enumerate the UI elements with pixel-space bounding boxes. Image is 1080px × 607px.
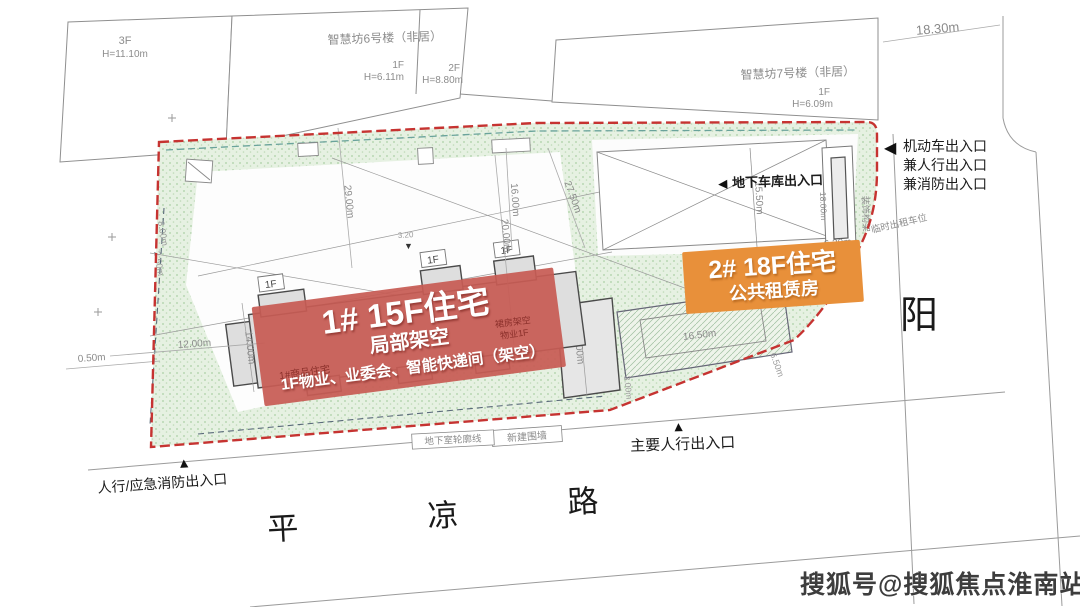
dim-road-top: 18.30m [915,19,960,38]
up-triangle-icon: ▲ [176,454,191,471]
down-triangle-icon: ▼ [404,241,413,251]
dim-edge3: 12.00m [177,338,211,351]
main-ped-entrance-text: 主要人行出入口 [630,434,736,455]
left-arrow-icon: ◀ [884,140,897,157]
up-triangle-icon: ▲ [671,418,685,434]
basement-outline-label: 地下室轮廓线 [412,430,495,449]
emergency-entrance-text: 人行/应急消防出入口 [97,471,228,496]
unit-1f-tag: 1F [427,254,440,266]
floor-label: 1F [392,60,404,71]
garage-entrance-text: 地下车库出入口 [732,172,823,190]
motor-entrance-label: ◀ 机动车出入口 兼人行出入口 兼消防出入口 [884,138,987,192]
motor-entrance-line2: 兼人行出入口 [903,157,987,173]
taxi-spot-label: 临时出租车位 [870,211,929,236]
road-char: 平 [267,510,300,547]
new-wall-label: 新建围墙 [491,426,562,447]
floor-label: 3F [119,35,132,47]
main-ped-entrance-label: ▲ 主要人行出入口 [629,416,735,455]
road-char: 路 [567,483,600,520]
dim-edge4: 0.50m [77,352,105,365]
unit-1f-tag: 1F [264,279,277,291]
road-char: 凉 [427,497,460,534]
watermark-text: 搜狐号@搜狐焦点淮南站 [800,570,1080,599]
motor-entrance-line1: 机动车出入口 [903,138,987,154]
site-plan-screenshot: 3F H=11.10m 智慧坊6号楼（非居） 1F H=6.11m 2F H=8… [0,0,1080,607]
site-plan-drawing: 3F H=11.10m 智慧坊6号楼（非居） 1F H=6.11m 2F H=8… [0,0,1080,607]
emergency-entrance-label: ▲ 人行/应急消防出入口 [96,452,228,496]
south-road-name: 平 凉 路 [267,483,600,547]
height-label: H=11.10m [102,49,148,60]
dim-deco: 18.00m [818,192,829,221]
height-label: H=6.09m [792,99,833,110]
height-label: H=8.80m [422,75,463,86]
motor-entrance-line3: 兼消防出入口 [903,176,987,192]
left-arrow-icon: ◀ [718,176,728,190]
garage-ramp [597,140,832,250]
floor-label: 1F [818,87,830,98]
east-road-name: 阳 [900,295,938,337]
dim-court-m1: 16.00m [508,183,521,217]
floor-label: 2F [448,63,460,74]
level-value: 3.20 [398,230,415,240]
building-2-label-overlay: 2# 18F住宅 公共租赁房 [682,240,864,314]
height-label: H=6.11m [364,72,404,83]
dim-b2-diagonal: 6.50m [768,351,786,378]
